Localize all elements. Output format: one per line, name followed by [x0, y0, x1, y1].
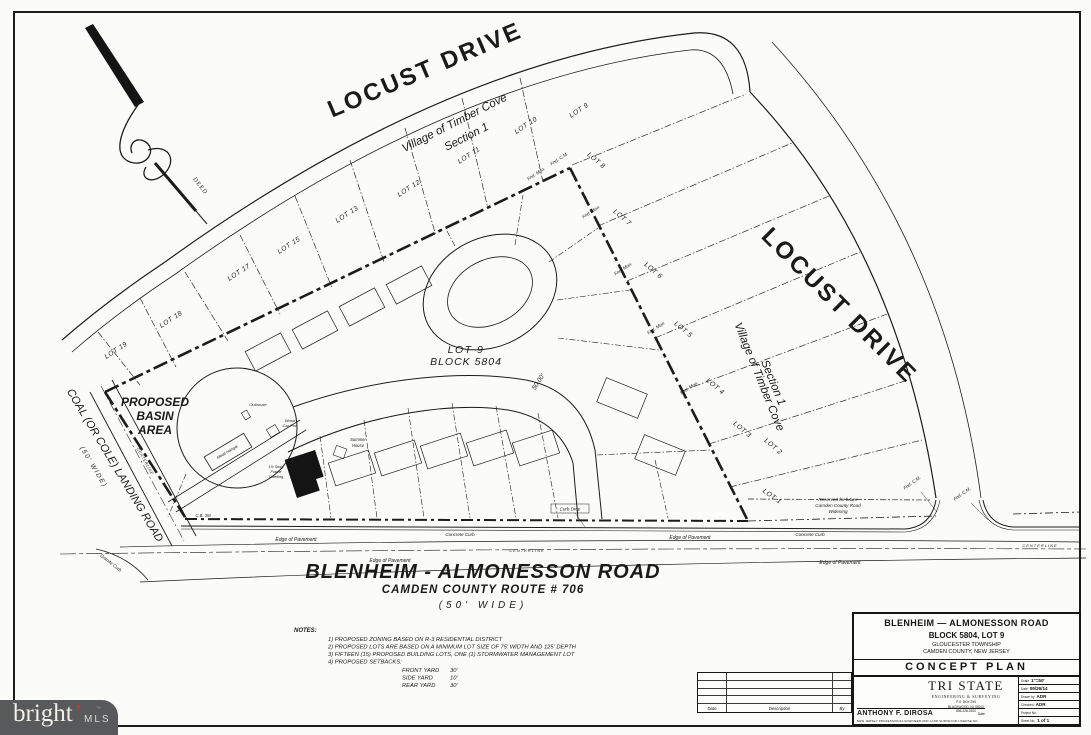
monument-labels: Fnd. C.M. Fnd. Mon. Fnd. Mon. Fnd. Mon. …: [526, 151, 988, 520]
drawn-by-value: ADR: [1036, 694, 1046, 699]
note-item: 4) PROPOSED SETBACKS:: [328, 660, 402, 666]
found-cm-label: Fnd. C.M.: [952, 486, 971, 502]
firm-and-signature: TRI STATE ENGINEERING & SURVEYING P.O. B…: [854, 677, 1018, 724]
lot-label: LOT 9: [568, 102, 590, 120]
firm-name: TRI STATE: [916, 678, 1016, 694]
lot-label: LOT 7: [612, 208, 633, 227]
lot-label: LOT 6: [643, 261, 664, 280]
centerline-label: CENTERLINE: [136, 447, 156, 476]
info-row-project-no: Project No.: [1019, 709, 1079, 717]
bright-mls-watermark: bright ✦ ™ MLS: [0, 700, 118, 735]
revisions-date-header: Date: [698, 706, 726, 711]
blenheim-road-title: BLENHEIM - ALMONESSON ROAD CAMDEN COUNTY…: [305, 561, 660, 611]
concrete-curb-label: Concrete Curb: [795, 532, 825, 537]
license-note: NEW JERSEY PROFESSIONAL ENGINEER AND LAN…: [857, 719, 979, 723]
lot-label: LOT 17: [227, 263, 252, 283]
revision-row: [698, 689, 851, 697]
centerline-label: CENTERLINE: [1022, 543, 1057, 548]
info-row-scale: Scale 1"=50': [1019, 677, 1079, 685]
sheet-no-label: Sheet No.: [1021, 719, 1035, 723]
bright-mls-brand-text: bright: [13, 700, 73, 728]
project-no-label: Project No.: [1021, 711, 1037, 715]
revisions-by-header: By: [833, 706, 851, 711]
summer-house-label: House: [352, 443, 365, 448]
basin-label-line: AREA: [137, 423, 172, 437]
setback-value: 30': [450, 668, 458, 674]
drawing-info-column: Scale 1"=50' Date 09/26/14 Drawn by ADR …: [1018, 677, 1079, 724]
locust-drive-top: LOCUST DRIVE: [62, 17, 750, 352]
revision-row: [698, 673, 851, 681]
village-of-timber-cove-top: Village of Timber Cove Section 1: [400, 92, 509, 155]
scale-value: 1"=50': [1031, 678, 1045, 683]
found-cm-label: Fnd. C.M.: [902, 475, 921, 491]
subject-lot-label: LOT 9: [448, 344, 485, 356]
edge-of-pavement-label: Edge of Pavement: [275, 537, 317, 543]
checked-label: Checked: [1021, 703, 1034, 707]
dwelling-label: 1½ Story: [268, 465, 284, 469]
setback-label: FRONT YARD: [402, 668, 439, 674]
found-monument-label: Fnd. Mon.: [526, 166, 546, 181]
signature-line: ANTHONY F. DIROSA Date: [857, 708, 985, 717]
plan-type-title: CONCEPT PLAN: [854, 659, 1079, 677]
checked-value: ADR: [1036, 702, 1046, 707]
revisions-divider: [726, 673, 727, 712]
lot-label: LOT 11: [457, 146, 482, 166]
note-item: 1) PROPOSED ZONING BASED ON R-3 RESIDENT…: [328, 637, 503, 643]
subject-block-label: BLOCK 5804: [430, 356, 502, 368]
road-label-locust-right: LOCUST DRIVE: [756, 222, 923, 389]
road-route-label: CAMDEN COUNTY ROUTE # 706: [382, 584, 584, 596]
setback-value: 10': [450, 676, 458, 682]
lot-lines-top: [98, 78, 543, 385]
info-row-date: Date 09/26/14: [1019, 685, 1079, 693]
basin-label-line: BASIN: [136, 409, 174, 423]
edge-of-pavement-label: Edge of Pavement: [819, 560, 861, 566]
title-block: BLENHEIM — ALMONESSON ROAD BLOCK 5804, L…: [852, 612, 1081, 726]
info-row-drawn: Drawn by ADR: [1019, 693, 1079, 701]
info-row-checked: Checked ADR: [1019, 701, 1079, 709]
project-identification: BLENHEIM — ALMONESSON ROAD BLOCK 5804, L…: [854, 614, 1079, 656]
lot-label: LOT 13: [335, 205, 360, 225]
centerline-label: CENTERLINE: [509, 548, 544, 553]
catch-basin-label: C.B. 3M: [195, 513, 211, 518]
revisions-header: Date Description By: [698, 704, 851, 712]
firm-tagline: ENGINEERING & SURVEYING: [916, 694, 1016, 699]
sheet-no-value: 1 of 1: [1037, 718, 1049, 723]
summer-house-label: Summer: [350, 437, 366, 442]
title-block-bottom: TRI STATE ENGINEERING & SURVEYING P.O. B…: [854, 677, 1079, 724]
revisions-description-header: Description: [726, 706, 833, 711]
revision-row: [698, 681, 851, 689]
concrete-curb-label: Concrete Curb: [445, 532, 475, 537]
drawn-by-label: Drawn by: [1021, 695, 1034, 699]
revision-row: [698, 696, 851, 704]
carport-label: Car Port: [283, 423, 299, 428]
road-label-blenheim: BLENHEIM - ALMONESSON ROAD: [305, 561, 660, 583]
reserved-widening-note: Reserved for future: [818, 497, 858, 502]
reserved-widening-note: Widening: [828, 509, 848, 514]
bright-mls-suffix-text: MLS: [84, 714, 111, 725]
signer-name: ANTHONY F. DIROSA: [857, 710, 933, 717]
lot-label: LOT 1: [761, 488, 783, 506]
notes-heading: NOTES:: [294, 628, 317, 634]
lot-lines-right: [572, 94, 922, 487]
lot-label: LOT 2: [763, 437, 784, 456]
setback-label: SIDE YARD: [402, 676, 433, 682]
revisions-table: Date Description By: [697, 672, 852, 713]
setback-label: REAR YARD: [402, 683, 435, 689]
subject-parcel-label: LOT 9 BLOCK 5804 50.00': [430, 344, 547, 391]
revisions-divider: [832, 673, 833, 712]
date-label: Date: [1021, 687, 1028, 691]
road-width-label: (50' WIDE): [439, 600, 528, 611]
info-row-sheet: Sheet No. 1 of 1: [1019, 717, 1079, 724]
note-item: 3) FIFTEEN (15) PROPOSED BUILDING LOTS, …: [328, 652, 575, 658]
north-arrow-icon: DEED: [85, 24, 208, 224]
hangar-label: Metal Hangar: [216, 443, 240, 460]
dwelling-label: Dwelling: [269, 475, 284, 479]
scale-label: Scale: [1021, 679, 1029, 683]
locust-drive-right: LOCUST DRIVE: [750, 42, 981, 498]
village-of-timber-cove-right: Village of Timber Cove Section 1: [731, 321, 787, 433]
project-county-state: CAMDEN COUNTY, NEW JERSEY: [854, 649, 1079, 656]
project-block-lot: BLOCK 5804, LOT 9: [854, 631, 1079, 641]
outhouse-label: Outhouse: [249, 402, 267, 407]
edge-of-pavement-label: Edge of Pavement: [669, 535, 711, 541]
deed-label: DEED: [191, 177, 208, 196]
lot-label: LOT 15: [277, 236, 302, 256]
proposed-road: [177, 211, 602, 519]
lot-label: LOT 12: [397, 179, 422, 199]
star-icon: ✦: [75, 702, 83, 713]
signature-date-label: Date: [978, 712, 985, 716]
lot-label: LOT 8: [586, 151, 607, 170]
property-boundary: [105, 168, 748, 521]
trademark-symbol: ™: [96, 706, 101, 712]
granite-curb-label: Granite Curb: [99, 553, 123, 573]
lot-label: LOT 3: [732, 420, 753, 439]
project-name: BLENHEIM — ALMONESSON ROAD: [854, 618, 1079, 630]
found-cm-label: Fnd. C.M.: [549, 151, 569, 166]
project-township: GLOUCESTER TOWNSHIP: [854, 642, 1079, 649]
lot-label: LOT 10: [514, 116, 539, 136]
lot-label: LOT 18: [159, 310, 184, 330]
note-item: 2) PROPOSED LOTS ARE BASED ON A MINIMUM …: [327, 645, 577, 651]
notes-block: NOTES: 1) PROPOSED ZONING BASED ON R-3 R…: [294, 628, 577, 689]
concept-plan-sheet: DEED LOCUST DRIVE LOCUST DRIVE Village o…: [0, 0, 1091, 735]
dwelling-label: Frame: [271, 470, 282, 474]
lot-label: LOT 4: [705, 377, 726, 396]
reserved-widening-note: Camden County Road: [815, 503, 861, 508]
basin-label-line: PROPOSED: [121, 395, 189, 409]
setback-value: 30': [450, 683, 458, 689]
date-value: 09/26/14: [1030, 686, 1048, 691]
found-monument-label: Fnd. Mon.: [581, 204, 601, 219]
existing-structures: Metal Hangar Outhouse Wood Car Port 1½ S…: [168, 402, 367, 512]
